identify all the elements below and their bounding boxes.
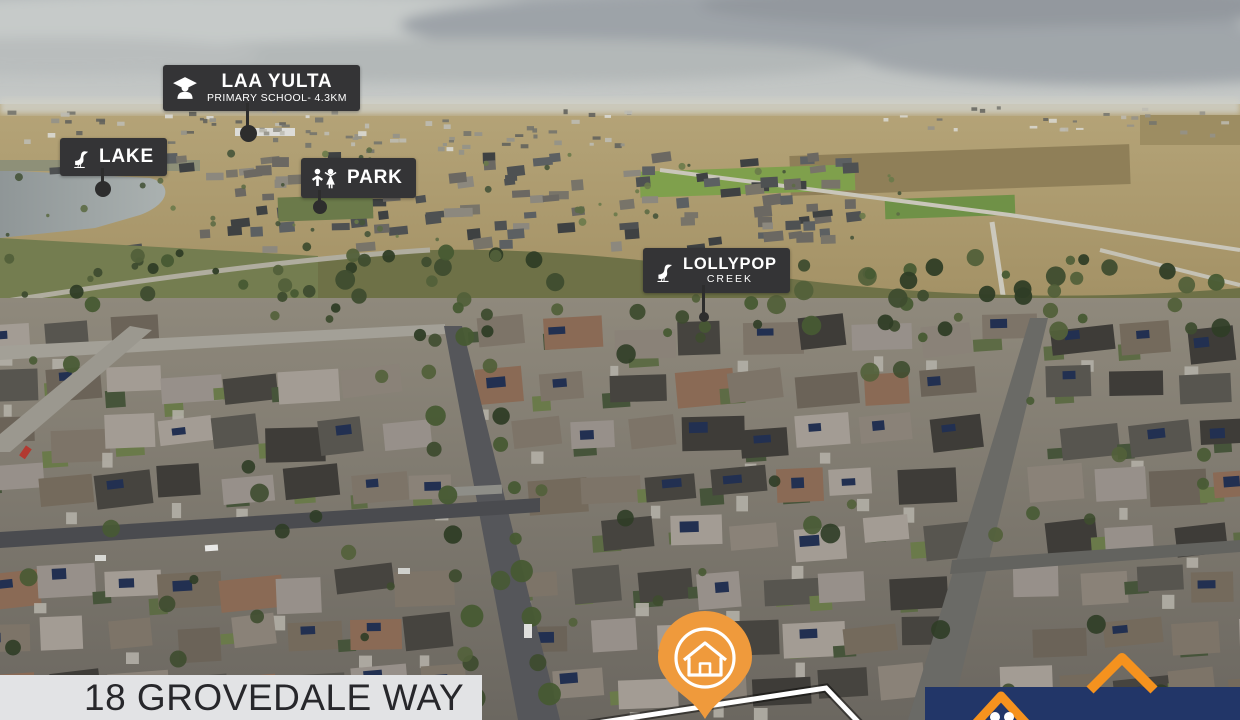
- school-marker: LAA YULTA PRIMARY SCHOOL- 4.3KM: [163, 65, 360, 111]
- school-marker-subtitle: PRIMARY SCHOOL- 4.3KM: [207, 93, 347, 105]
- school-marker-stick: [246, 103, 249, 126]
- lake-marker-stick: [101, 168, 104, 182]
- agency-logo: [900, 640, 1240, 720]
- lake-marker-dot: [95, 181, 111, 197]
- park-marker-dot: [313, 200, 327, 214]
- graduate-cap-icon: [172, 75, 198, 101]
- creek-marker-subtitle: CREEK: [707, 274, 753, 286]
- creek-marker-dot: [699, 312, 709, 322]
- creek-marker-title: LOLLYPOP: [683, 255, 777, 273]
- heron-icon: [652, 260, 674, 282]
- lake-marker-title: LAKE: [99, 146, 154, 168]
- creek-marker: LOLLYPOP CREEK: [643, 248, 790, 293]
- address-banner: 18 GROVEDALE WAY: [0, 675, 482, 720]
- children-icon: [310, 168, 338, 189]
- school-marker-dot: [240, 125, 257, 142]
- roof-chevron-large-icon: [1090, 658, 1154, 690]
- creek-marker-stick: [702, 285, 705, 313]
- heron-icon: [69, 147, 90, 168]
- park-marker-title: PARK: [347, 167, 403, 189]
- lake-marker: LAKE: [60, 138, 167, 176]
- school-marker-title: LAA YULTA: [221, 71, 332, 92]
- property-address: 18 GROVEDALE WAY: [84, 677, 464, 719]
- aerial-listing-image: LAA YULTA PRIMARY SCHOOL- 4.3KM LAKE PAR…: [0, 0, 1240, 720]
